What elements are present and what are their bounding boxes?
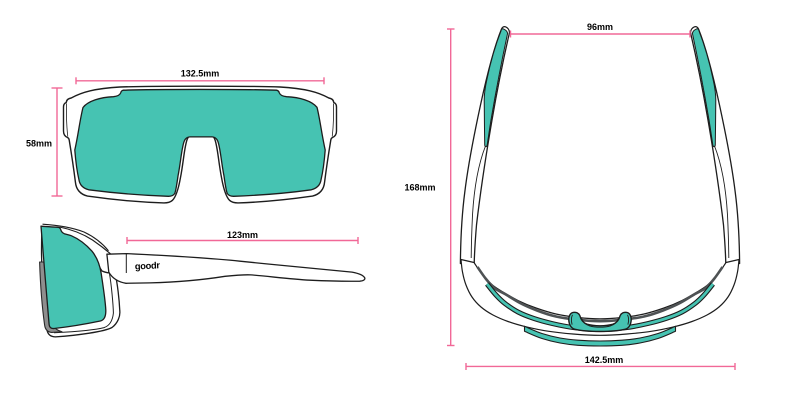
svg-text:goodr: goodr: [135, 260, 161, 271]
svg-text:132.5mm: 132.5mm: [181, 68, 220, 78]
svg-text:142.5mm: 142.5mm: [585, 355, 624, 365]
svg-text:58mm: 58mm: [26, 138, 52, 148]
svg-text:123mm: 123mm: [227, 230, 258, 240]
svg-text:96mm: 96mm: [587, 22, 613, 32]
svg-text:168mm: 168mm: [404, 183, 435, 193]
